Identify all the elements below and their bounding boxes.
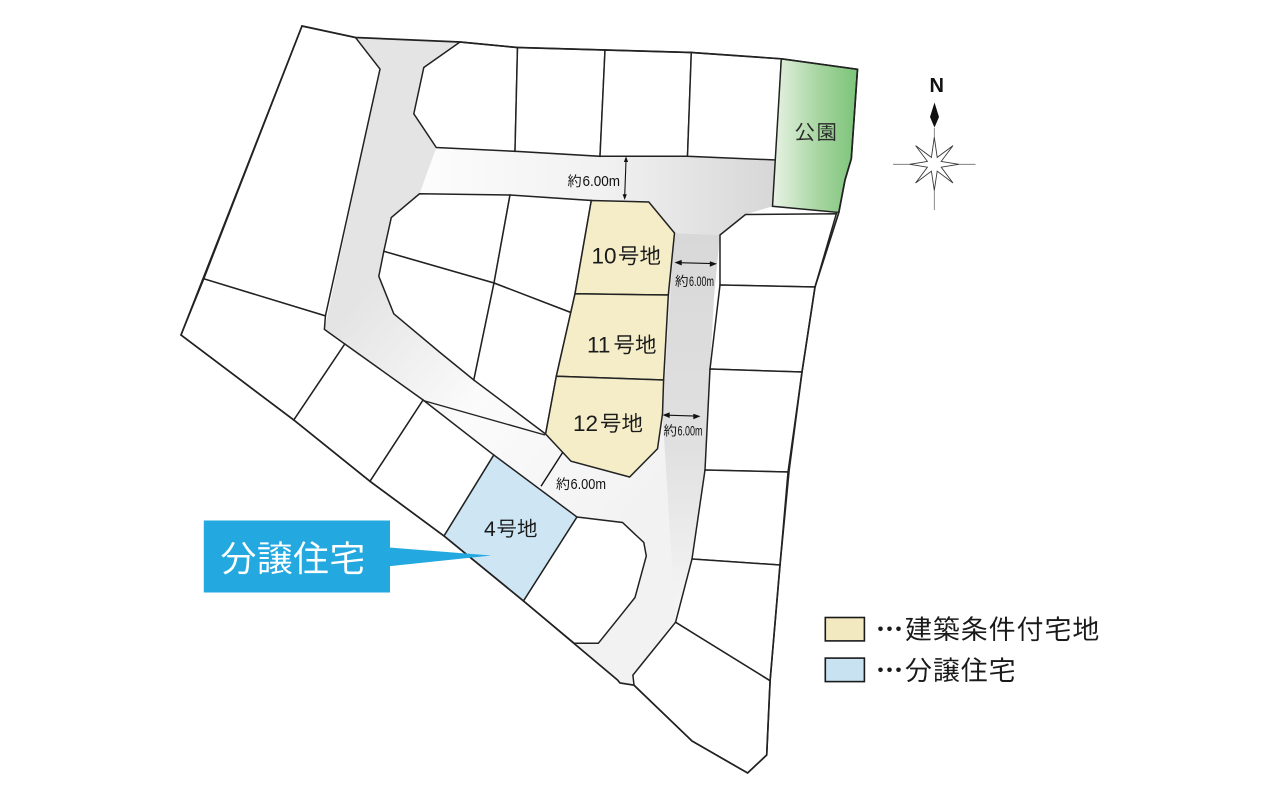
- svg-text:6.00m: 6.00m: [678, 424, 703, 439]
- svg-text:6.00m: 6.00m: [583, 173, 621, 190]
- svg-text:12: 12: [573, 411, 598, 436]
- svg-text:11: 11: [587, 333, 610, 358]
- svg-text:6.00m: 6.00m: [689, 274, 714, 289]
- svg-text:4: 4: [484, 518, 496, 541]
- svg-text:6.00m: 6.00m: [571, 477, 607, 493]
- svg-text:N: N: [930, 75, 944, 97]
- svg-text:10: 10: [592, 244, 617, 269]
